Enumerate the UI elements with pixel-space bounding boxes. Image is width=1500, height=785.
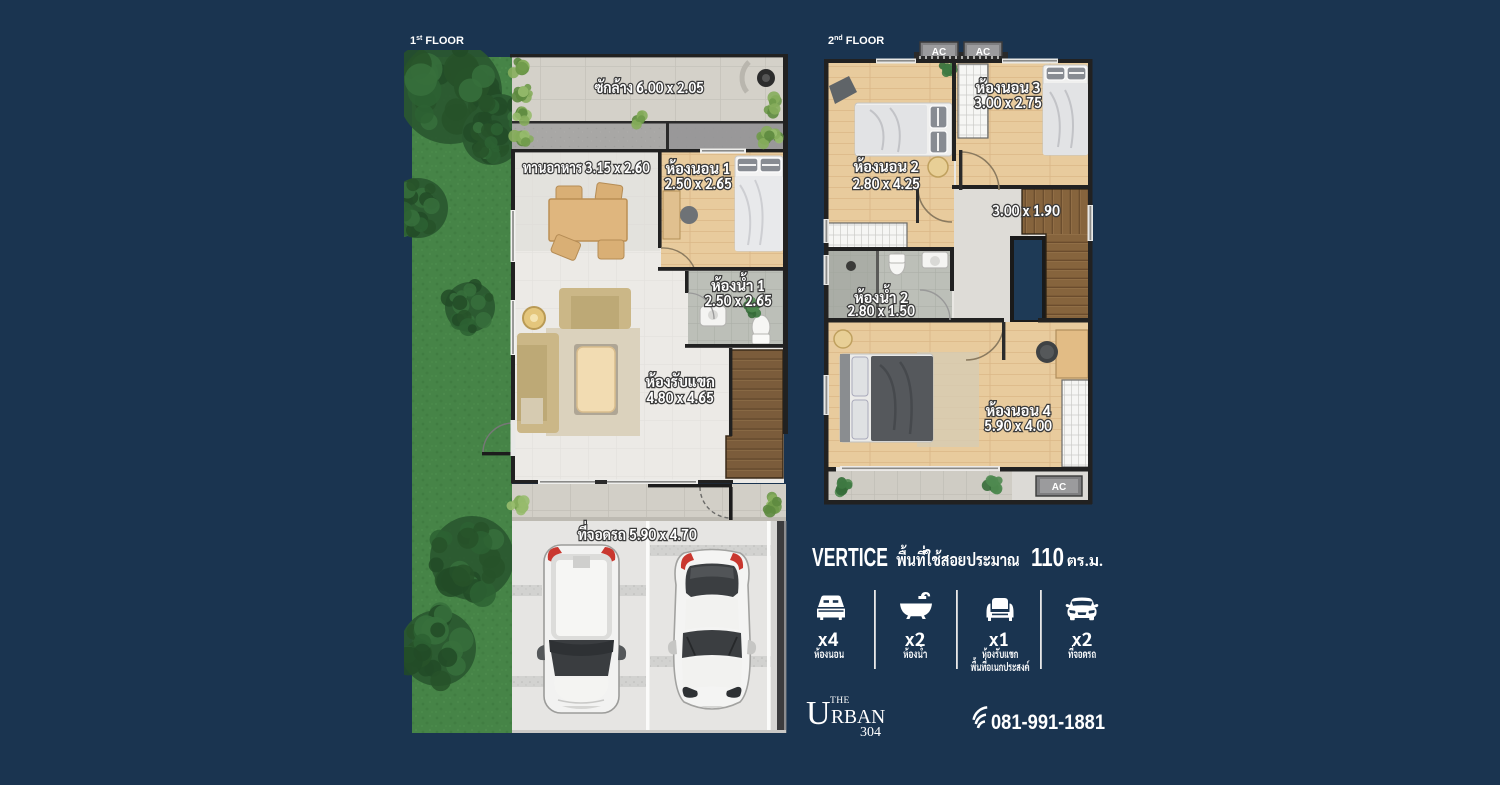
svg-text:5.90 x 4.00: 5.90 x 4.00 bbox=[984, 415, 1052, 435]
svg-text:ที่จอดรถ 5.90 x 4.70: ที่จอดรถ 5.90 x 4.70 bbox=[577, 520, 696, 544]
svg-text:VERTICE: VERTICE bbox=[812, 542, 888, 572]
svg-text:ตร.ม.: ตร.ม. bbox=[1067, 549, 1103, 570]
svg-text:ห้องนอน: ห้องนอน bbox=[814, 647, 845, 662]
svg-text:พื้นที่ใช้สอยประมาณ: พื้นที่ใช้สอยประมาณ bbox=[896, 543, 1020, 570]
svg-text:THE: THE bbox=[830, 696, 850, 706]
svg-text:ทานอาหาร 3.15 x 2.60: ทานอาหาร 3.15 x 2.60 bbox=[522, 158, 649, 177]
svg-text:4.80 x 4.65: 4.80 x 4.65 bbox=[646, 387, 714, 407]
svg-text:2.50 x 2.65: 2.50 x 2.65 bbox=[704, 290, 772, 310]
svg-text:2.80 x 1.50: 2.80 x 1.50 bbox=[847, 300, 915, 320]
svg-text:ซักล้าง 6.00 x 2.05: ซักล้าง 6.00 x 2.05 bbox=[594, 77, 704, 97]
svg-text:2.80 x 4.25: 2.80 x 4.25 bbox=[852, 173, 920, 193]
svg-text:081-991-1881: 081-991-1881 bbox=[991, 711, 1105, 734]
svg-text:304: 304 bbox=[860, 725, 881, 740]
svg-text:AC: AC bbox=[1052, 482, 1066, 493]
svg-text:3.00 x 1.90: 3.00 x 1.90 bbox=[992, 200, 1060, 220]
svg-text:2.50 x 2.65: 2.50 x 2.65 bbox=[664, 173, 732, 193]
svg-text:U: U bbox=[806, 695, 831, 732]
svg-text:110: 110 bbox=[1031, 542, 1064, 572]
svg-text:ห้องรับแขก: ห้องรับแขก bbox=[982, 646, 1018, 661]
svg-text:ที่จอดรถ: ที่จอดรถ bbox=[1068, 644, 1096, 661]
svg-text:3.00 x 2.75: 3.00 x 2.75 bbox=[974, 92, 1042, 112]
